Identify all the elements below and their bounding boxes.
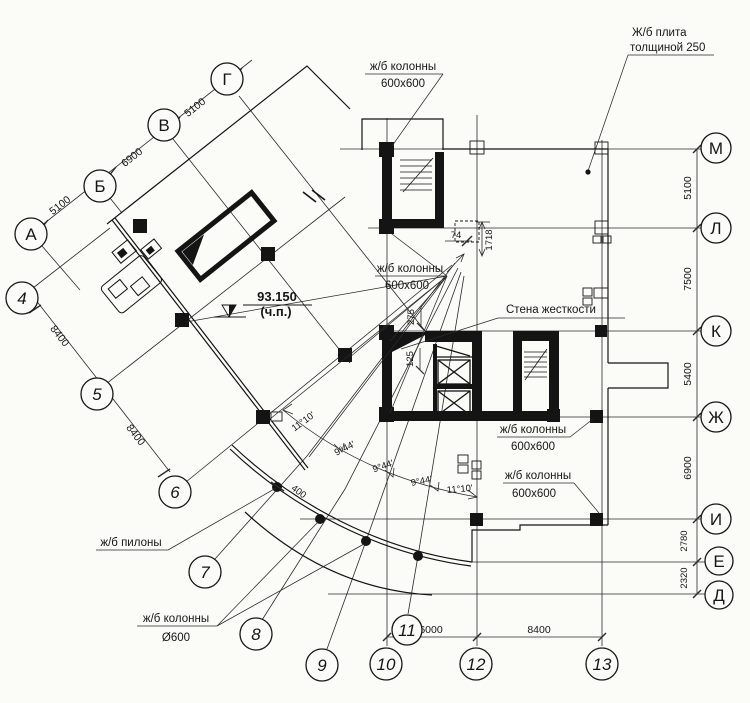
elevation-note: (ч.п.) — [260, 304, 291, 319]
bubble-label-9: 9 — [317, 656, 327, 675]
callout-top-columns-2: 600х600 — [381, 78, 425, 90]
dim-125: 125 — [405, 351, 416, 367]
dim-2320-ED: 2320 — [679, 567, 690, 588]
bubble-label-L: Л — [710, 219, 721, 238]
floor-plan-sheet: 5100 6900 5100 8400 8400 5100 7500 5400 … — [0, 0, 750, 703]
gridline-A — [42, 246, 80, 290]
bubble-label-11: 11 — [398, 621, 416, 640]
angle-dim-3: 9°44' — [371, 458, 395, 475]
bubble-label-7: 7 — [200, 563, 210, 582]
column-600 — [379, 142, 394, 157]
dim-74: 74 — [451, 230, 462, 241]
bubble-label-B: Б — [94, 177, 105, 196]
wall — [382, 149, 392, 228]
bubble-label-13: 13 — [593, 655, 612, 674]
callout-shear-wall: Стена жесткости — [506, 304, 596, 316]
bubble-label-A: А — [25, 225, 37, 244]
pylon-arc-inner — [230, 449, 471, 566]
callout-round-columns-2: Ø600 — [162, 632, 190, 644]
orthogonal-gridlines — [300, 115, 712, 646]
gridline-B-stub — [110, 198, 122, 213]
callout-pylons: ж/б пилоны — [100, 537, 161, 549]
pylon-wall-line-b — [115, 218, 308, 468]
bubble-label-K: К — [711, 322, 721, 341]
column-outline — [595, 221, 608, 234]
dim-8400-56: 8400 — [123, 422, 147, 448]
callout-slab-1: Ж/б плита — [632, 27, 687, 39]
column-600 — [547, 409, 560, 422]
bubble-label-G: Г — [222, 70, 231, 89]
bubble-label-I: И — [710, 510, 722, 529]
dim-6900-ZhI: 6900 — [682, 456, 694, 480]
dim-5100-ML: 5100 — [682, 176, 694, 200]
callout-right-columns-upper-2: 600х600 — [511, 441, 555, 453]
column-600 — [379, 219, 394, 234]
callout-right-columns-lower-2: 600х600 — [512, 488, 556, 500]
angle-dim-2: 9°44' — [333, 439, 357, 459]
dim-1718: 1718 — [484, 229, 495, 250]
pylon — [413, 551, 423, 561]
bubble-label-12: 12 — [467, 655, 486, 674]
round-column — [315, 514, 325, 524]
slab-edge-bump — [608, 363, 668, 388]
slab-edge-step — [472, 525, 608, 562]
bubble-label-D: Д — [713, 586, 725, 605]
dim-7500-LK: 7500 — [682, 267, 694, 291]
elevator-shafts — [435, 346, 472, 415]
floor-plan-drawing: 5100 6900 5100 8400 8400 5100 7500 5400 … — [0, 0, 750, 703]
column-outline — [595, 142, 608, 154]
dim-5400-KZh: 5400 — [682, 362, 694, 386]
dim-275: 275 — [406, 309, 417, 325]
angle-dim-1: 11°10' — [290, 410, 318, 434]
dim-5100-VG: 5100 — [182, 96, 208, 120]
callout-round-columns-1: ж/б колонны — [143, 613, 209, 625]
dim-texts: 5100 6900 5100 8400 8400 5100 7500 5400 … — [47, 96, 694, 636]
angle-dim-5: 11°10' — [446, 483, 473, 496]
bubble-label-6: 6 — [170, 483, 180, 502]
right-dim-chain — [693, 145, 701, 598]
callout-right-columns-upper-1: ж/б колонны — [500, 424, 566, 436]
bubble-label-8: 8 — [251, 625, 261, 644]
bubble-label-4: 4 — [17, 289, 26, 308]
top-stairwell — [379, 142, 444, 234]
bubble-label-5: 5 — [92, 385, 102, 404]
bubble-label-Zh: Ж — [708, 408, 724, 427]
wall — [435, 152, 444, 228]
callout-slab-2: толщиной 250 — [630, 42, 705, 54]
callout-mid-columns-1: ж/б колонны — [377, 263, 443, 275]
dim-8400-45: 8400 — [47, 323, 71, 349]
break-mark-2 — [303, 192, 316, 202]
dim-6000: 6000 — [419, 624, 443, 636]
column-600 — [379, 325, 394, 340]
wall — [549, 331, 559, 422]
bubble-label-10: 10 — [377, 655, 396, 674]
bubble-label-V: В — [158, 116, 169, 135]
wall — [433, 344, 437, 417]
dim-8400-bottom: 8400 — [527, 624, 551, 636]
break-mark-1 — [312, 190, 325, 200]
bubble-label-M: М — [709, 139, 723, 158]
dim-2780-IE: 2780 — [679, 530, 690, 551]
grid-bubbles — [6, 63, 733, 681]
wall — [513, 331, 522, 420]
callout-mid-columns-2: 600х600 — [385, 280, 429, 292]
elevator-x — [438, 360, 470, 384]
wall — [472, 331, 482, 421]
pylon-arc-outer — [232, 445, 472, 562]
core-stair-glyph — [524, 349, 547, 380]
dim-6900-BV: 6900 — [119, 146, 145, 170]
callout-top-columns-1: ж/б колонны — [370, 61, 436, 73]
bubble-label-E: Е — [713, 552, 724, 571]
slab-edge-protrusion — [362, 119, 443, 150]
wall — [435, 384, 472, 389]
vestibule-diagonal — [436, 346, 470, 356]
gridline-6 — [186, 265, 452, 482]
dim-5100-AB: 5100 — [47, 194, 73, 218]
callout-right-columns-lower-1: ж/б колонны — [505, 470, 571, 482]
elevation-value: 93.150 — [257, 289, 297, 304]
top-stair-glyph — [400, 158, 433, 192]
